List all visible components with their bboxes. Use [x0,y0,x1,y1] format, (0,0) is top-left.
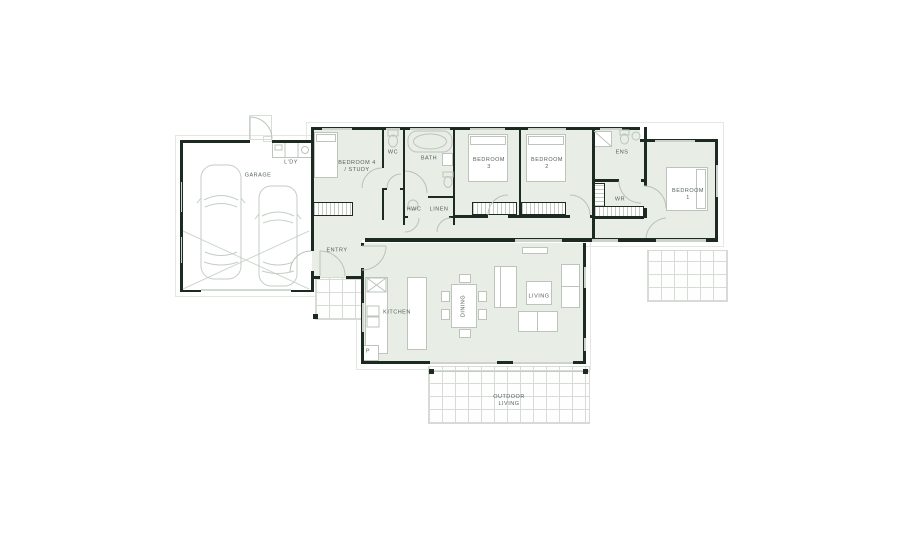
label-ens: ENS [616,149,629,156]
car-icon [255,186,301,286]
bathtub-icon [408,131,452,152]
floor-plan: GARAGE L'DY BEDROOM 4 / STUDY WC BATH HW… [0,0,900,540]
basin-icon [632,132,640,140]
garage-door [183,231,309,290]
kitchen-sink-icon [367,306,379,327]
label-bedroom2: BEDROOM 2 [531,157,563,171]
label-bath: BATH [421,155,437,162]
car-icon [197,165,245,279]
label-laundry: L'DY [284,159,298,166]
label-garage: GARAGE [245,172,272,179]
label-bedroom4: BEDROOM 4 / STUDY [338,160,376,174]
label-living: LIVING [528,293,549,300]
shower-icon [594,131,612,147]
door-swing [250,117,666,276]
toilet-icon [388,130,398,147]
toilet-icon [620,130,629,144]
label-dining: DINING [460,295,467,317]
label-linen: LINEN [430,206,449,213]
fixtures-layer [0,0,900,540]
washing-machine-icon [275,143,309,157]
label-wr: WR [615,196,625,203]
toilet-icon [443,172,453,188]
label-bedroom1: BEDROOM 1 [672,188,704,202]
label-wc: WC [388,149,398,156]
label-outdoor-living: OUTDOOR LIVING [493,394,525,408]
label-bedroom3: BEDROOM 3 [473,157,505,171]
label-pantry: P [366,348,370,355]
label-kitchen: KITCHEN [383,309,411,316]
fridge-icon [367,278,386,292]
label-entry: ENTRY [326,247,347,254]
label-hwc: HWC [407,206,422,213]
